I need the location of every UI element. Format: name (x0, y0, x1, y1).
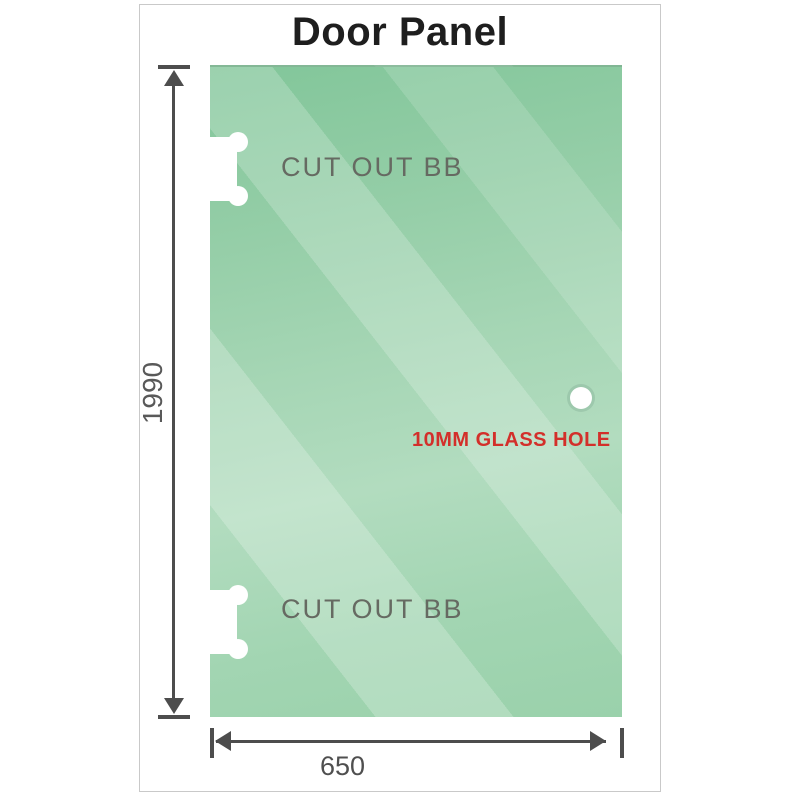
cutout-top-lobe-upper (228, 132, 248, 152)
height-dimension-bottom-tick (158, 715, 190, 719)
width-dimension-left-tick (210, 728, 214, 758)
diagram-canvas: Door Panel CUT OUT BB CUT OUT BB 10MM GL… (0, 0, 800, 800)
glass-hole (570, 387, 592, 409)
width-dimension-label: 650 (320, 751, 365, 782)
width-dimension-right-tick (620, 728, 624, 758)
height-dimension-top-tick (158, 65, 190, 69)
cutout-bottom-lobe-lower (228, 639, 248, 659)
cutout-bottom-lobe-upper (228, 585, 248, 605)
width-dimension-arrow-left-icon (215, 731, 231, 751)
width-dimension-arrow-right-icon (590, 731, 606, 751)
width-dimension-line (216, 740, 606, 743)
height-dimension-line (172, 74, 175, 704)
height-dimension-label: 1990 (137, 347, 169, 439)
height-dimension-arrow-down-icon (164, 698, 184, 714)
cutout-top-lobe-lower (228, 186, 248, 206)
diagram-title: Door Panel (139, 10, 661, 55)
cutout-top-label: CUT OUT BB (281, 152, 464, 183)
glass-hole-label: 10MM GLASS HOLE (412, 429, 611, 452)
cutout-bottom-label: CUT OUT BB (281, 594, 464, 625)
height-dimension-arrow-up-icon (164, 70, 184, 86)
